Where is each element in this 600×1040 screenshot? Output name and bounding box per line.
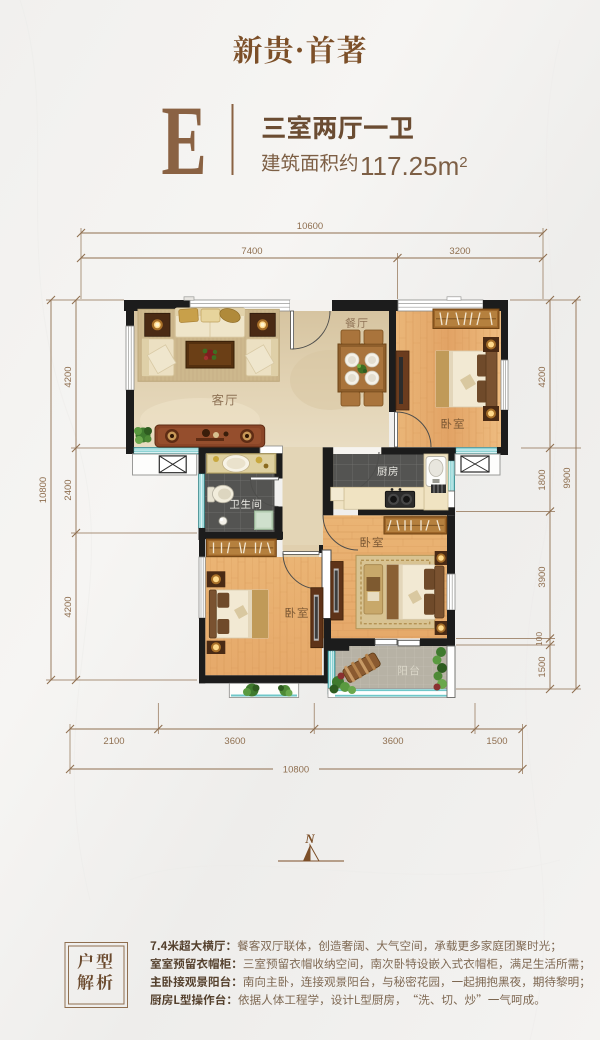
svg-text:4200: 4200 [63, 596, 74, 617]
svg-text:117.25m2: 117.25m2 [360, 151, 468, 181]
svg-text:3200: 3200 [449, 246, 470, 257]
svg-text:4200: 4200 [537, 366, 548, 387]
svg-text:7400: 7400 [241, 246, 262, 257]
svg-text:3600: 3600 [382, 736, 403, 747]
svg-text:1500: 1500 [537, 656, 548, 677]
svg-text:100: 100 [534, 632, 544, 646]
svg-text:10800: 10800 [283, 765, 309, 776]
svg-text:E: E [161, 86, 206, 196]
svg-text:3900: 3900 [537, 566, 548, 587]
svg-text:N: N [304, 831, 315, 846]
svg-text:10800: 10800 [38, 477, 49, 503]
svg-text:4200: 4200 [63, 366, 74, 387]
svg-text:1800: 1800 [537, 469, 548, 490]
svg-text:2400: 2400 [63, 479, 74, 500]
svg-text:3600: 3600 [224, 736, 245, 747]
svg-text:10600: 10600 [297, 221, 323, 232]
svg-text:1500: 1500 [486, 736, 507, 747]
svg-text:9900: 9900 [562, 467, 573, 488]
svg-text:2100: 2100 [103, 736, 124, 747]
